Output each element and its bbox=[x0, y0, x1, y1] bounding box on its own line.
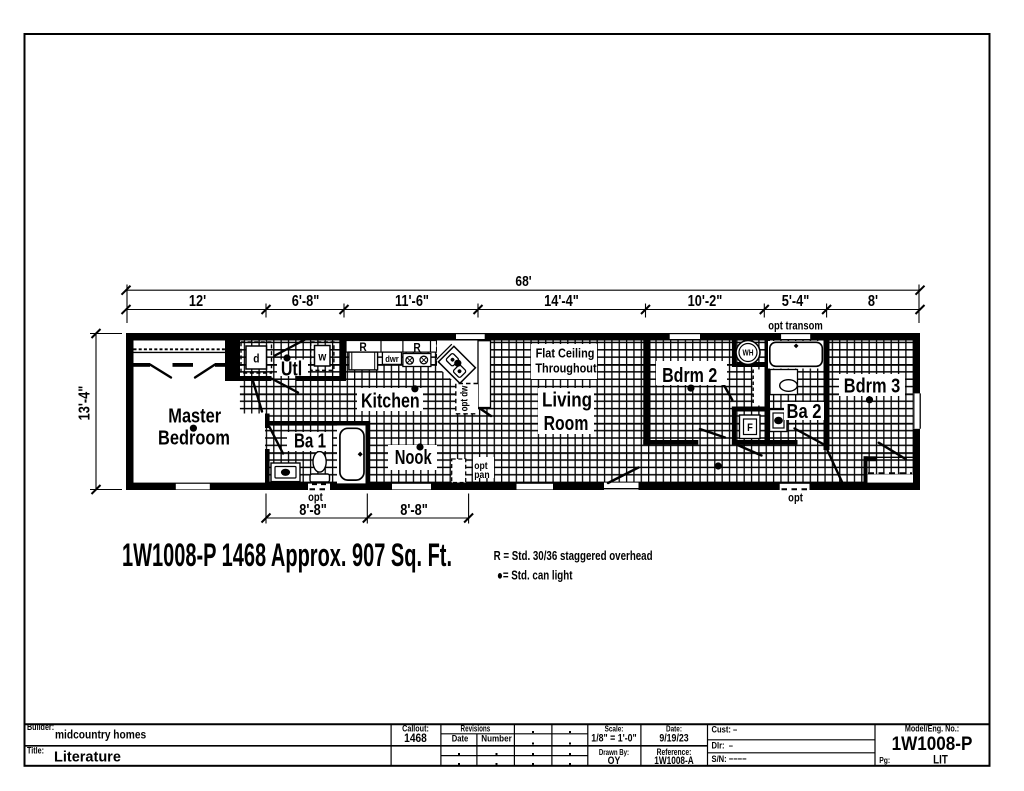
svg-text:Title:: Title: bbox=[27, 746, 44, 756]
svg-text:Cust: –: Cust: – bbox=[712, 724, 738, 735]
svg-text:●= Std. can light: ●= Std. can light bbox=[497, 569, 573, 583]
svg-text:Pg:: Pg: bbox=[879, 755, 890, 765]
svg-text:Room: Room bbox=[544, 412, 589, 434]
svg-text:1W1008-A: 1W1008-A bbox=[654, 755, 693, 767]
svg-text:6'-8": 6'-8" bbox=[292, 293, 320, 311]
svg-text:14'-4": 14'-4" bbox=[544, 293, 579, 311]
svg-text:Kitchen: Kitchen bbox=[361, 390, 420, 412]
svg-text:12': 12' bbox=[189, 293, 206, 311]
svg-text:13'-4": 13'-4" bbox=[76, 386, 94, 421]
svg-text:Builder:: Builder: bbox=[27, 722, 54, 732]
svg-text:1/8" = 1'-0": 1/8" = 1'-0" bbox=[591, 733, 637, 745]
svg-text:Bdrm 2: Bdrm 2 bbox=[662, 364, 717, 386]
svg-text:9/19/23: 9/19/23 bbox=[659, 733, 689, 745]
svg-text:WH: WH bbox=[742, 348, 753, 358]
svg-text:Master: Master bbox=[168, 404, 221, 427]
svg-text:R: R bbox=[413, 342, 420, 355]
svg-text:opt dw: opt dw bbox=[459, 385, 470, 412]
svg-text:Dlr: –: Dlr: – bbox=[712, 740, 734, 751]
svg-text:opt: opt bbox=[788, 492, 803, 505]
svg-text:midcountry homes: midcountry homes bbox=[55, 729, 146, 742]
svg-text:LIT: LIT bbox=[933, 754, 948, 767]
svg-text:68': 68' bbox=[515, 273, 531, 290]
svg-text:F: F bbox=[747, 422, 753, 434]
svg-text:5'-4": 5'-4" bbox=[782, 293, 810, 311]
svg-text:pan: pan bbox=[474, 469, 489, 481]
svg-text:Date: Date bbox=[452, 733, 469, 744]
svg-text:8'-8": 8'-8" bbox=[299, 502, 327, 520]
svg-text:8'-8": 8'-8" bbox=[400, 502, 428, 520]
svg-text:Utl: Utl bbox=[281, 358, 302, 380]
svg-text:Flat Ceiling: Flat Ceiling bbox=[536, 345, 595, 360]
svg-text:Ba 1: Ba 1 bbox=[294, 429, 326, 452]
svg-text:1W1008-P: 1W1008-P bbox=[892, 733, 973, 754]
svg-text:Bedroom: Bedroom bbox=[158, 426, 230, 449]
svg-text:R = Std. 30/36 staggered overh: R = Std. 30/36 staggered overhead bbox=[494, 550, 653, 564]
svg-text:w: w bbox=[317, 351, 326, 364]
svg-text:OY: OY bbox=[608, 755, 621, 767]
svg-text:1W1008-P 1468 Approx. 907 Sq.: 1W1008-P 1468 Approx. 907 Sq. Ft. bbox=[122, 537, 452, 573]
svg-text:Ba 2: Ba 2 bbox=[786, 400, 821, 423]
svg-text:R: R bbox=[359, 341, 366, 354]
svg-text:Bdrm 3: Bdrm 3 bbox=[844, 374, 900, 397]
svg-text:8': 8' bbox=[868, 293, 878, 311]
svg-text:Nook: Nook bbox=[395, 446, 432, 469]
svg-text:1468: 1468 bbox=[404, 732, 427, 745]
svg-text:Number: Number bbox=[481, 733, 512, 744]
svg-text:Throughout: Throughout bbox=[535, 360, 596, 375]
svg-text:d: d bbox=[253, 353, 259, 366]
svg-text:dwr: dwr bbox=[385, 353, 399, 364]
svg-text:Literature: Literature bbox=[54, 749, 121, 765]
svg-text:11'-6": 11'-6" bbox=[395, 293, 429, 311]
svg-text:Living: Living bbox=[542, 388, 592, 411]
svg-text:10'-2": 10'-2" bbox=[688, 293, 723, 311]
svg-text:opt transom: opt transom bbox=[768, 320, 822, 333]
svg-text:S/N: −−−−: S/N: −−−− bbox=[712, 753, 747, 764]
